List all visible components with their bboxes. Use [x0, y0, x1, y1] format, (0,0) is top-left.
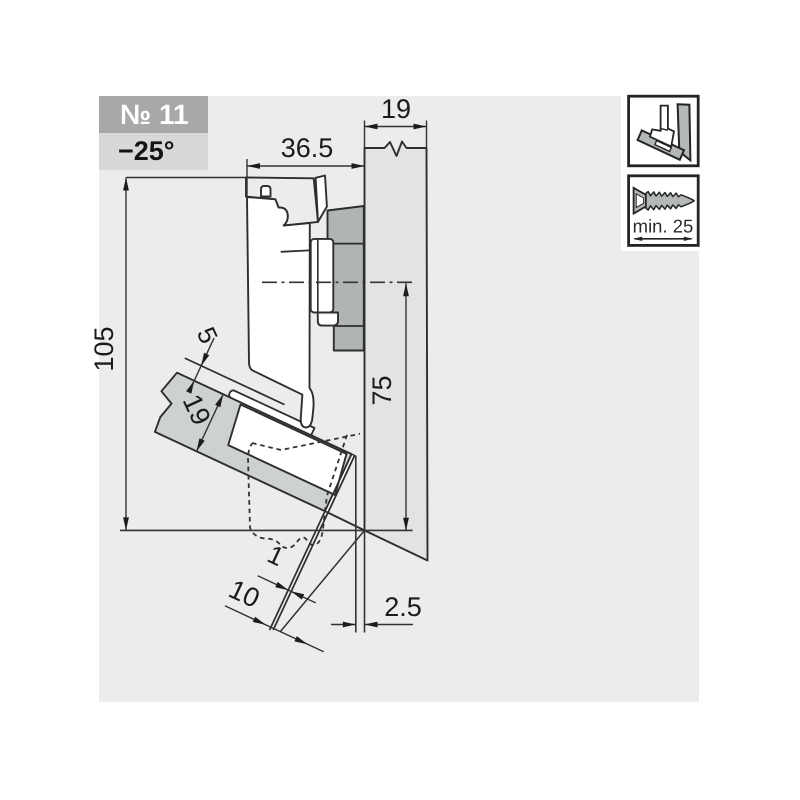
svg-text:36.5: 36.5 [281, 133, 334, 163]
svg-text:105: 105 [89, 326, 119, 371]
svg-text:2.5: 2.5 [384, 592, 422, 622]
svg-text:№ 11: № 11 [120, 99, 189, 130]
svg-text:min. 25: min. 25 [633, 215, 694, 236]
svg-text:75: 75 [367, 375, 397, 405]
svg-text:19: 19 [381, 94, 411, 124]
svg-text:−25°: −25° [118, 136, 175, 166]
